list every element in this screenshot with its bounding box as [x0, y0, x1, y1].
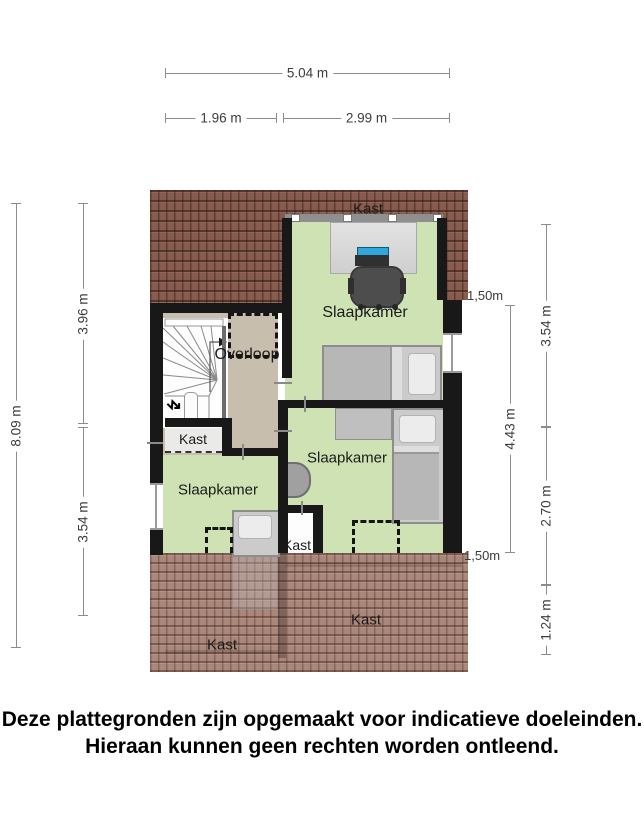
dim-left-upper: 3.96 m	[76, 203, 90, 424]
window-frame	[150, 528, 163, 530]
headroom-label-lower: 1,50m	[464, 548, 500, 563]
window-left	[150, 483, 163, 530]
dim-tick	[541, 224, 551, 225]
dim-tick	[78, 203, 88, 204]
label-kast-left: Kast	[179, 431, 207, 447]
window-mullion	[451, 333, 453, 373]
headroom-label-upper: 1,50m	[467, 288, 503, 303]
dim-tick	[11, 647, 21, 648]
dim-tick	[541, 585, 551, 586]
label-slaapkamer-mid: Slaapkamer	[307, 450, 387, 467]
dim-left-lower: 3.54 m	[76, 427, 90, 616]
dim-label: 3.54 m	[76, 496, 91, 547]
label-slaapkamer-left: Slaapkamer	[178, 482, 258, 499]
dim-top-left: 1.96 m	[165, 111, 277, 125]
dim-tick	[78, 427, 88, 428]
label-slaapkamer-top: Slaapkamer	[322, 304, 407, 322]
floor-plan: ↯	[150, 190, 468, 672]
dim-right-upper: 3.54 m	[539, 224, 553, 427]
label-kast-roof-left: Kast	[207, 637, 237, 654]
dim-right-lower: 1.24 m	[539, 585, 553, 655]
dim-label: 5.04 m	[282, 66, 333, 81]
wall-segment	[437, 218, 447, 300]
door-tick	[242, 444, 244, 460]
wall-segment	[150, 530, 163, 555]
door-tick	[301, 501, 303, 515]
ghost-wall	[278, 553, 286, 658]
dim-tick	[505, 305, 515, 306]
door-tick	[304, 396, 306, 412]
skylight-slaapkamer-left	[205, 527, 233, 553]
disclaimer-line1: Deze plattegronden zijn opgemaakt voor i…	[0, 706, 644, 733]
dim-label: 1.24 m	[539, 594, 554, 645]
dim-tick	[541, 654, 551, 655]
wardrobe-post	[291, 214, 300, 222]
bed-blanket	[394, 452, 439, 520]
dim-label: 2.99 m	[341, 111, 392, 126]
roof-top-left	[150, 190, 286, 305]
pillow	[408, 353, 436, 395]
wardrobe-post	[388, 214, 397, 222]
dim-label: 4.43 m	[503, 403, 518, 454]
dim-tick	[78, 423, 88, 424]
label-kast-roof-right: Kast	[351, 612, 381, 629]
label-kast-small: Kast	[283, 537, 311, 553]
dim-tick	[11, 203, 21, 204]
ghost-bed	[232, 553, 278, 610]
wall-segment	[313, 505, 323, 553]
window-frame	[443, 371, 462, 373]
wall-segment	[222, 448, 278, 456]
pillow	[399, 415, 436, 443]
dim-tick	[449, 68, 450, 78]
wall-segment	[150, 303, 163, 483]
window-right	[443, 333, 462, 373]
window-frame	[443, 333, 462, 335]
dim-label: 3.96 m	[76, 288, 91, 339]
dim-tick	[541, 427, 551, 428]
dim-right-inner: 4.43 m	[503, 305, 517, 553]
dim-tick	[505, 552, 515, 553]
dim-top-total: 5.04 m	[165, 66, 450, 80]
dim-label: 3.54 m	[539, 300, 554, 351]
skylight-slaapkamer-mid	[352, 520, 400, 553]
ghost-line	[286, 563, 462, 567]
bed-top-room	[322, 345, 442, 402]
bed-left-room	[232, 510, 280, 557]
dim-tick	[449, 113, 450, 123]
disclaimer-line2: Hieraan kunnen geen rechten worden ontle…	[0, 733, 644, 760]
dim-top-right: 2.99 m	[283, 111, 450, 125]
door-tick	[147, 442, 163, 444]
dim-label: 8.09 m	[9, 400, 24, 451]
dim-label: 2.70 m	[539, 480, 554, 531]
door-tick	[274, 382, 292, 384]
bed-blanket	[324, 347, 392, 400]
office-chair	[350, 266, 404, 308]
dim-left-total: 8.09 m	[9, 203, 23, 648]
dim-right-middle: 2.70 m	[539, 427, 553, 585]
laptop-keyboard	[355, 255, 389, 266]
dim-tick	[283, 113, 284, 123]
door-tick	[274, 430, 292, 432]
dim-label: 1.96 m	[195, 111, 246, 126]
roof-bottom	[150, 553, 468, 672]
dim-tick	[276, 113, 277, 123]
label-overloop: Overloop	[215, 346, 280, 364]
dim-tick	[78, 615, 88, 616]
wall-segment	[282, 218, 292, 378]
dim-tick	[165, 113, 166, 123]
wall-segment	[165, 418, 225, 427]
pillow	[238, 515, 272, 539]
wall-segment	[150, 303, 285, 313]
window-mullion	[155, 483, 157, 530]
disclaimer: Deze plattegronden zijn opgemaakt voor i…	[0, 706, 644, 760]
wardrobe-post	[343, 214, 352, 222]
chair-armrest	[348, 278, 354, 294]
window-frame	[150, 483, 163, 485]
bed-fold	[392, 347, 402, 400]
wall-segment	[443, 300, 462, 333]
label-kast-top: Kast	[353, 201, 383, 218]
dim-tick	[165, 68, 166, 78]
dresser	[335, 408, 392, 440]
bed-mid-room	[392, 408, 445, 524]
stair-balustrade	[222, 326, 226, 426]
chair-armrest	[400, 278, 406, 294]
